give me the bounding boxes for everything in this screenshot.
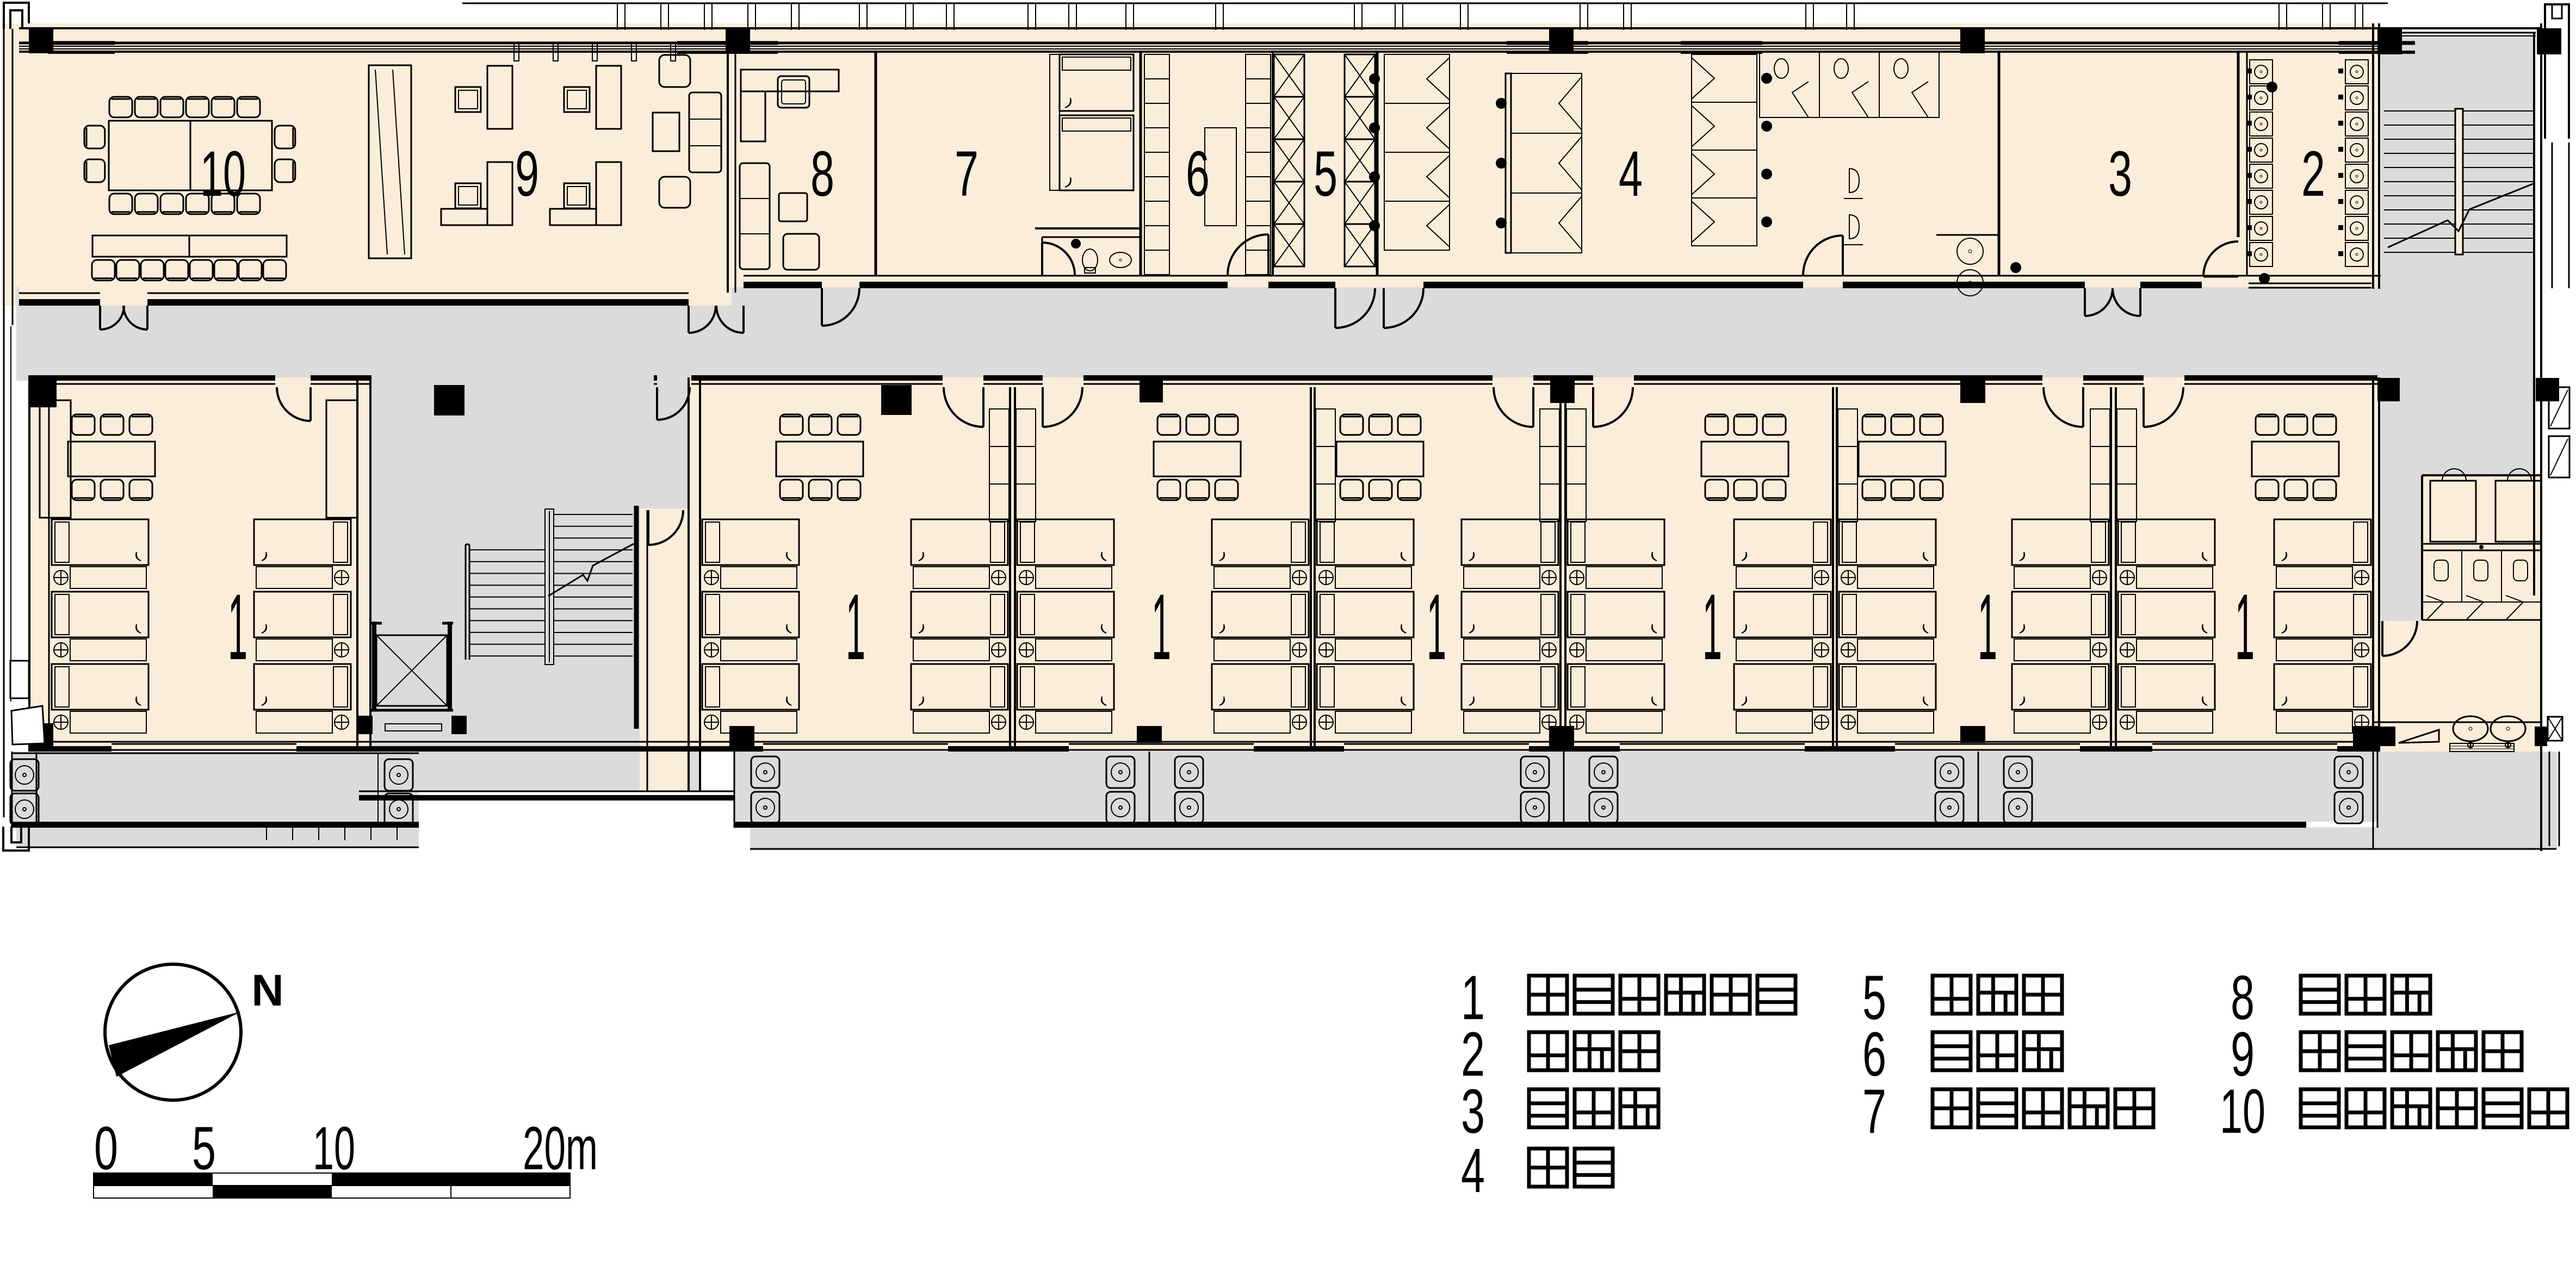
svg-text:6: 6 xyxy=(1186,138,1210,210)
svg-text:10: 10 xyxy=(313,1114,355,1182)
svg-text:10: 10 xyxy=(200,138,246,210)
svg-text:5: 5 xyxy=(192,1114,216,1182)
svg-text:3: 3 xyxy=(2108,138,2132,210)
svg-text:8: 8 xyxy=(810,138,834,210)
svg-text:9: 9 xyxy=(515,138,539,210)
svg-text:1: 1 xyxy=(1702,575,1722,679)
svg-text:4: 4 xyxy=(1619,138,1643,210)
svg-text:1: 1 xyxy=(1978,575,1997,679)
svg-text:0: 0 xyxy=(94,1114,118,1182)
svg-text:7: 7 xyxy=(1862,1077,1886,1146)
svg-text:5: 5 xyxy=(1314,138,1337,210)
svg-text:1: 1 xyxy=(846,575,865,679)
svg-text:10: 10 xyxy=(2220,1077,2265,1146)
svg-text:1: 1 xyxy=(1151,575,1171,679)
svg-text:4: 4 xyxy=(1461,1136,1485,1206)
svg-text:1: 1 xyxy=(228,575,247,679)
svg-text:1: 1 xyxy=(1427,575,1446,679)
svg-text:1: 1 xyxy=(2235,575,2255,679)
svg-text:N: N xyxy=(251,966,283,1015)
svg-text:20m: 20m xyxy=(523,1114,598,1182)
svg-text:7: 7 xyxy=(955,138,979,210)
svg-text:2: 2 xyxy=(2301,138,2325,210)
